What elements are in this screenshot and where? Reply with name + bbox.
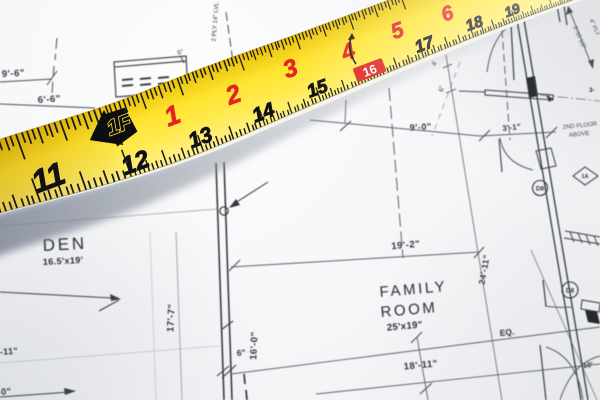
svg-text:9'-0": 9'-0" <box>410 121 433 133</box>
svg-text:6": 6" <box>236 347 245 358</box>
svg-text:D8: D8 <box>536 185 545 192</box>
svg-text:D8: D8 <box>566 287 575 294</box>
svg-text:9'-11": 9'-11" <box>0 346 18 358</box>
svg-text:17'-7": 17'-7" <box>165 304 177 333</box>
svg-text:16.5'x19': 16.5'x19' <box>43 255 84 267</box>
svg-text:16'-0": 16'-0" <box>248 331 260 360</box>
svg-text:EQ.: EQ. <box>499 327 515 338</box>
svg-text:3-: 3- <box>589 87 595 94</box>
svg-text:10': 10' <box>582 360 593 370</box>
svg-text:6'-6": 6'-6" <box>37 93 61 106</box>
svg-text:1A: 1A <box>581 174 588 180</box>
svg-text:9'-6": 9'-6" <box>2 68 26 80</box>
